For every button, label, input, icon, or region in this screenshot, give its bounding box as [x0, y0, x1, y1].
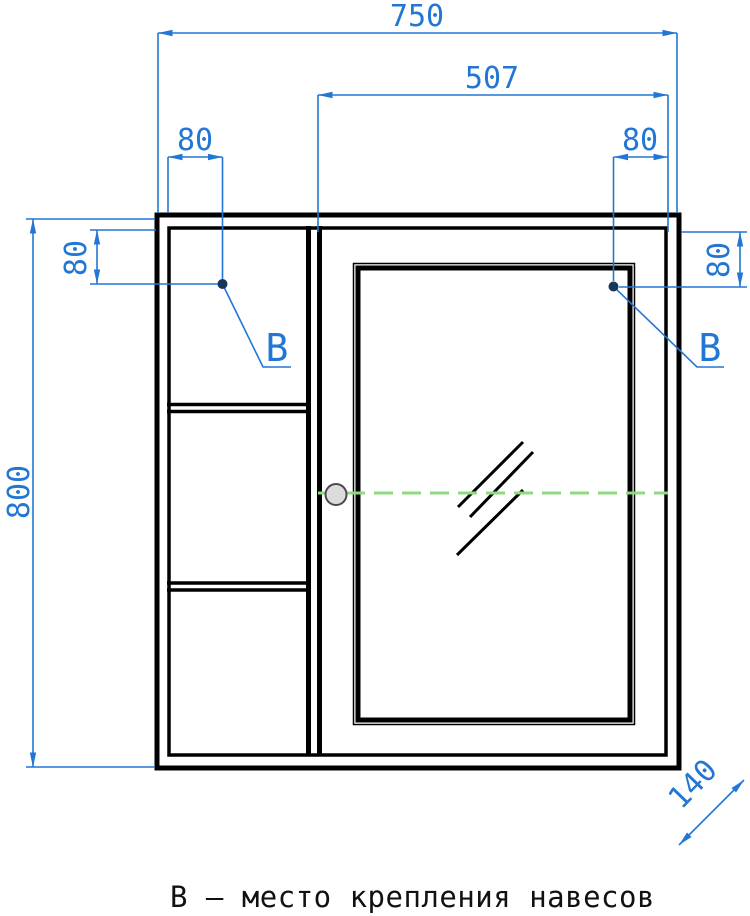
mount-label-right: В — [699, 326, 722, 370]
dim-label-mount-drop-right: 80 — [702, 242, 737, 278]
drawing-caption: В – место крепления навесов — [170, 880, 655, 914]
dim-label-mount-span: 507 — [465, 61, 519, 96]
technical-drawing-page: 750 507 80 80 80 80 — [0, 0, 750, 916]
mirror-glass-hatching — [457, 442, 533, 555]
mount-point-right — [609, 282, 619, 292]
dim-label-mount-drop-left: 80 — [59, 240, 94, 276]
mount-label-left: В — [266, 326, 289, 370]
dim-label-overall-width: 750 — [390, 0, 444, 34]
dim-label-mount-inset-left: 80 — [177, 123, 213, 158]
dim-label-depth: 140 — [662, 753, 725, 816]
dim-label-overall-height: 800 — [2, 465, 37, 519]
dim-label-mount-inset-right: 80 — [622, 123, 658, 158]
door-handle — [326, 484, 347, 505]
cabinet-drawing-canvas: 750 507 80 80 80 80 — [0, 0, 750, 916]
mount-point-left — [218, 279, 228, 289]
